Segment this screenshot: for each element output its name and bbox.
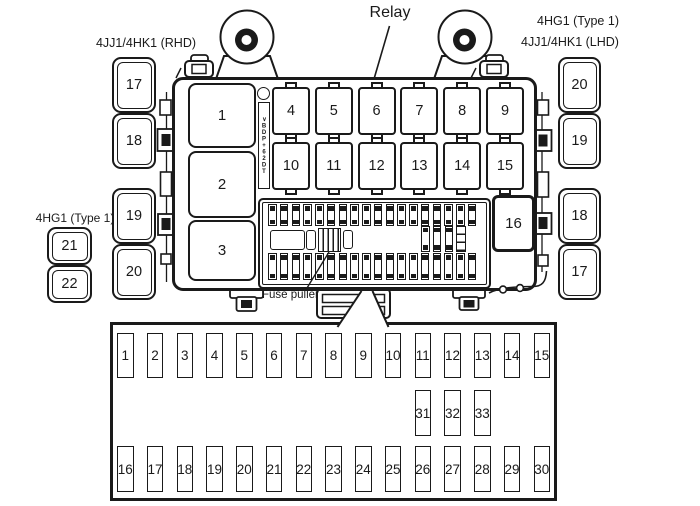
slot-number: 19 xyxy=(563,118,597,165)
detail-fuse-29: 29 xyxy=(504,446,521,492)
left-mid-slot-20: 20 xyxy=(112,244,156,300)
detail-fuse-11: 11 xyxy=(415,333,432,378)
detail-fuse-2: 2 xyxy=(147,333,164,378)
left-bottom-slot-21: 21 xyxy=(47,227,92,265)
relay-slot-10: 10 xyxy=(272,142,310,190)
relay-slot-14: 14 xyxy=(443,142,481,190)
slot-number: 20 xyxy=(563,62,597,109)
detail-fuse-4: 4 xyxy=(206,333,223,378)
relay-slot-12: 12 xyxy=(358,142,396,190)
left-mid-slot-19: 19 xyxy=(112,188,156,244)
detail-fuse-16: 16 xyxy=(117,446,134,492)
relay-slot-7: 7 xyxy=(400,87,438,135)
right-bottom-slot-17: 17 xyxy=(558,244,601,300)
detail-fuse-27: 27 xyxy=(444,446,461,492)
right-bottom-slot-18: 18 xyxy=(558,188,601,244)
detail-fuse-20: 20 xyxy=(236,446,253,492)
detail-fuse-13: 13 xyxy=(474,333,491,378)
detail-fuse-23: 23 xyxy=(325,446,342,492)
relay-slot-9: 9 xyxy=(486,87,524,135)
relay-slot-2: 2 xyxy=(188,151,256,218)
detail-fuse-17: 17 xyxy=(147,446,164,492)
relay-slot-8: 8 xyxy=(443,87,481,135)
detail-fuse-14: 14 xyxy=(504,333,521,378)
detail-fuse-1: 1 xyxy=(117,333,134,378)
relay-slot-1: 1 xyxy=(188,83,256,148)
slot-number: 17 xyxy=(563,249,597,296)
slot-number: 18 xyxy=(563,193,597,240)
detail-fuse-15: 15 xyxy=(534,333,551,378)
detail-fuse-22: 22 xyxy=(296,446,313,492)
slot-number: 21 xyxy=(52,232,88,261)
slot-number: 19 xyxy=(117,193,152,240)
relay-slot-3: 3 xyxy=(188,220,256,281)
slot-number: 22 xyxy=(52,270,88,299)
detail-fuse-18: 18 xyxy=(177,446,194,492)
fuse-puller-callout-line xyxy=(307,252,329,288)
left-top-slot-18: 18 xyxy=(112,113,156,169)
right-top-slot-20: 20 xyxy=(558,57,601,113)
detail-fuse-7: 7 xyxy=(296,333,313,378)
lead-wire xyxy=(489,271,547,293)
magnify-callout-wedge xyxy=(338,291,389,327)
relay-callout-line xyxy=(374,26,390,79)
relay-slot-15: 15 xyxy=(486,142,524,190)
relay-slot-16: 16 xyxy=(492,195,535,252)
relay-slot-4: 4 xyxy=(272,87,310,135)
detail-fuse-24: 24 xyxy=(355,446,372,492)
detail-fuse-10: 10 xyxy=(385,333,402,378)
relay-slot-13: 13 xyxy=(400,142,438,190)
slot-number: 18 xyxy=(117,118,152,165)
slot-number: 17 xyxy=(117,62,152,109)
detail-fuse-12: 12 xyxy=(444,333,461,378)
detail-fuse-19: 19 xyxy=(206,446,223,492)
detail-fuse-32: 32 xyxy=(444,390,461,436)
left-bottom-slot-22: 22 xyxy=(47,265,92,303)
slot-number: 20 xyxy=(117,249,152,296)
relay-slot-5: 5 xyxy=(315,87,353,135)
detail-fuse-21: 21 xyxy=(266,446,283,492)
detail-fuse-3: 3 xyxy=(177,333,194,378)
detail-fuse-9: 9 xyxy=(355,333,372,378)
right-top-slot-19: 19 xyxy=(558,113,601,169)
detail-fuse-8: 8 xyxy=(325,333,342,378)
detail-fuse-25: 25 xyxy=(385,446,402,492)
detail-fuse-6: 6 xyxy=(266,333,283,378)
detail-fuse-26: 26 xyxy=(415,446,432,492)
detail-fuse-31: 31 xyxy=(415,390,432,436)
detail-fuse-30: 30 xyxy=(534,446,551,492)
fuse-box-diagram: ∨BDP+62DT Relay 4HG1 (Type 1) 4JJ1/4HK1 … xyxy=(0,0,700,506)
relay-slot-11: 11 xyxy=(315,142,353,190)
relay-slot-6: 6 xyxy=(358,87,396,135)
left-top-slot-17: 17 xyxy=(112,57,156,113)
detail-fuse-33: 33 xyxy=(474,390,491,436)
detail-fuse-28: 28 xyxy=(474,446,491,492)
detail-fuse-5: 5 xyxy=(236,333,253,378)
